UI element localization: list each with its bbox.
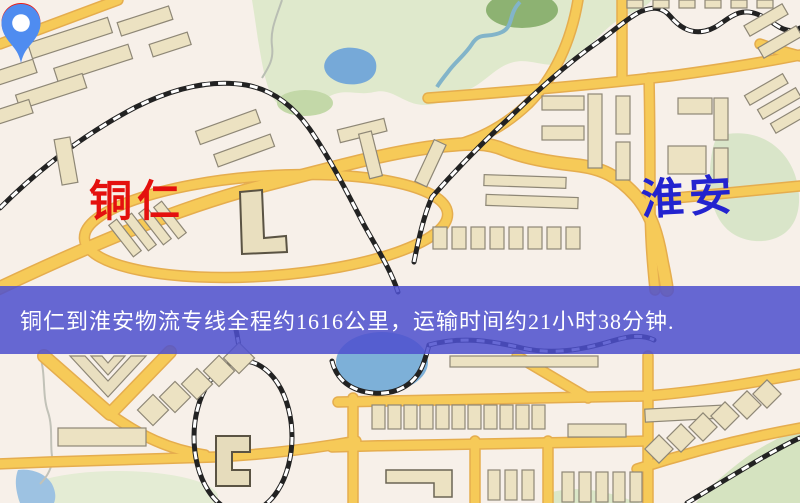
destination-marker-pin-icon[interactable] xyxy=(0,0,42,68)
destination-label: 淮安 xyxy=(640,175,738,223)
route-info-text: 铜仁到淮安物流专线全程约1616公里，运输时间约21小时38分钟. xyxy=(0,304,675,336)
origin-label: 铜仁 xyxy=(89,181,185,224)
map-background[interactable] xyxy=(0,0,800,503)
pin-hole xyxy=(12,14,30,32)
route-info-banner: 铜仁到淮安物流专线全程约1616公里，运输时间约21小时38分钟. xyxy=(0,286,800,354)
route-map-image: 铜仁 淮安 铜仁到淮安物流专线全程约1616公里，运输时间约21小时38分钟. xyxy=(0,0,800,503)
